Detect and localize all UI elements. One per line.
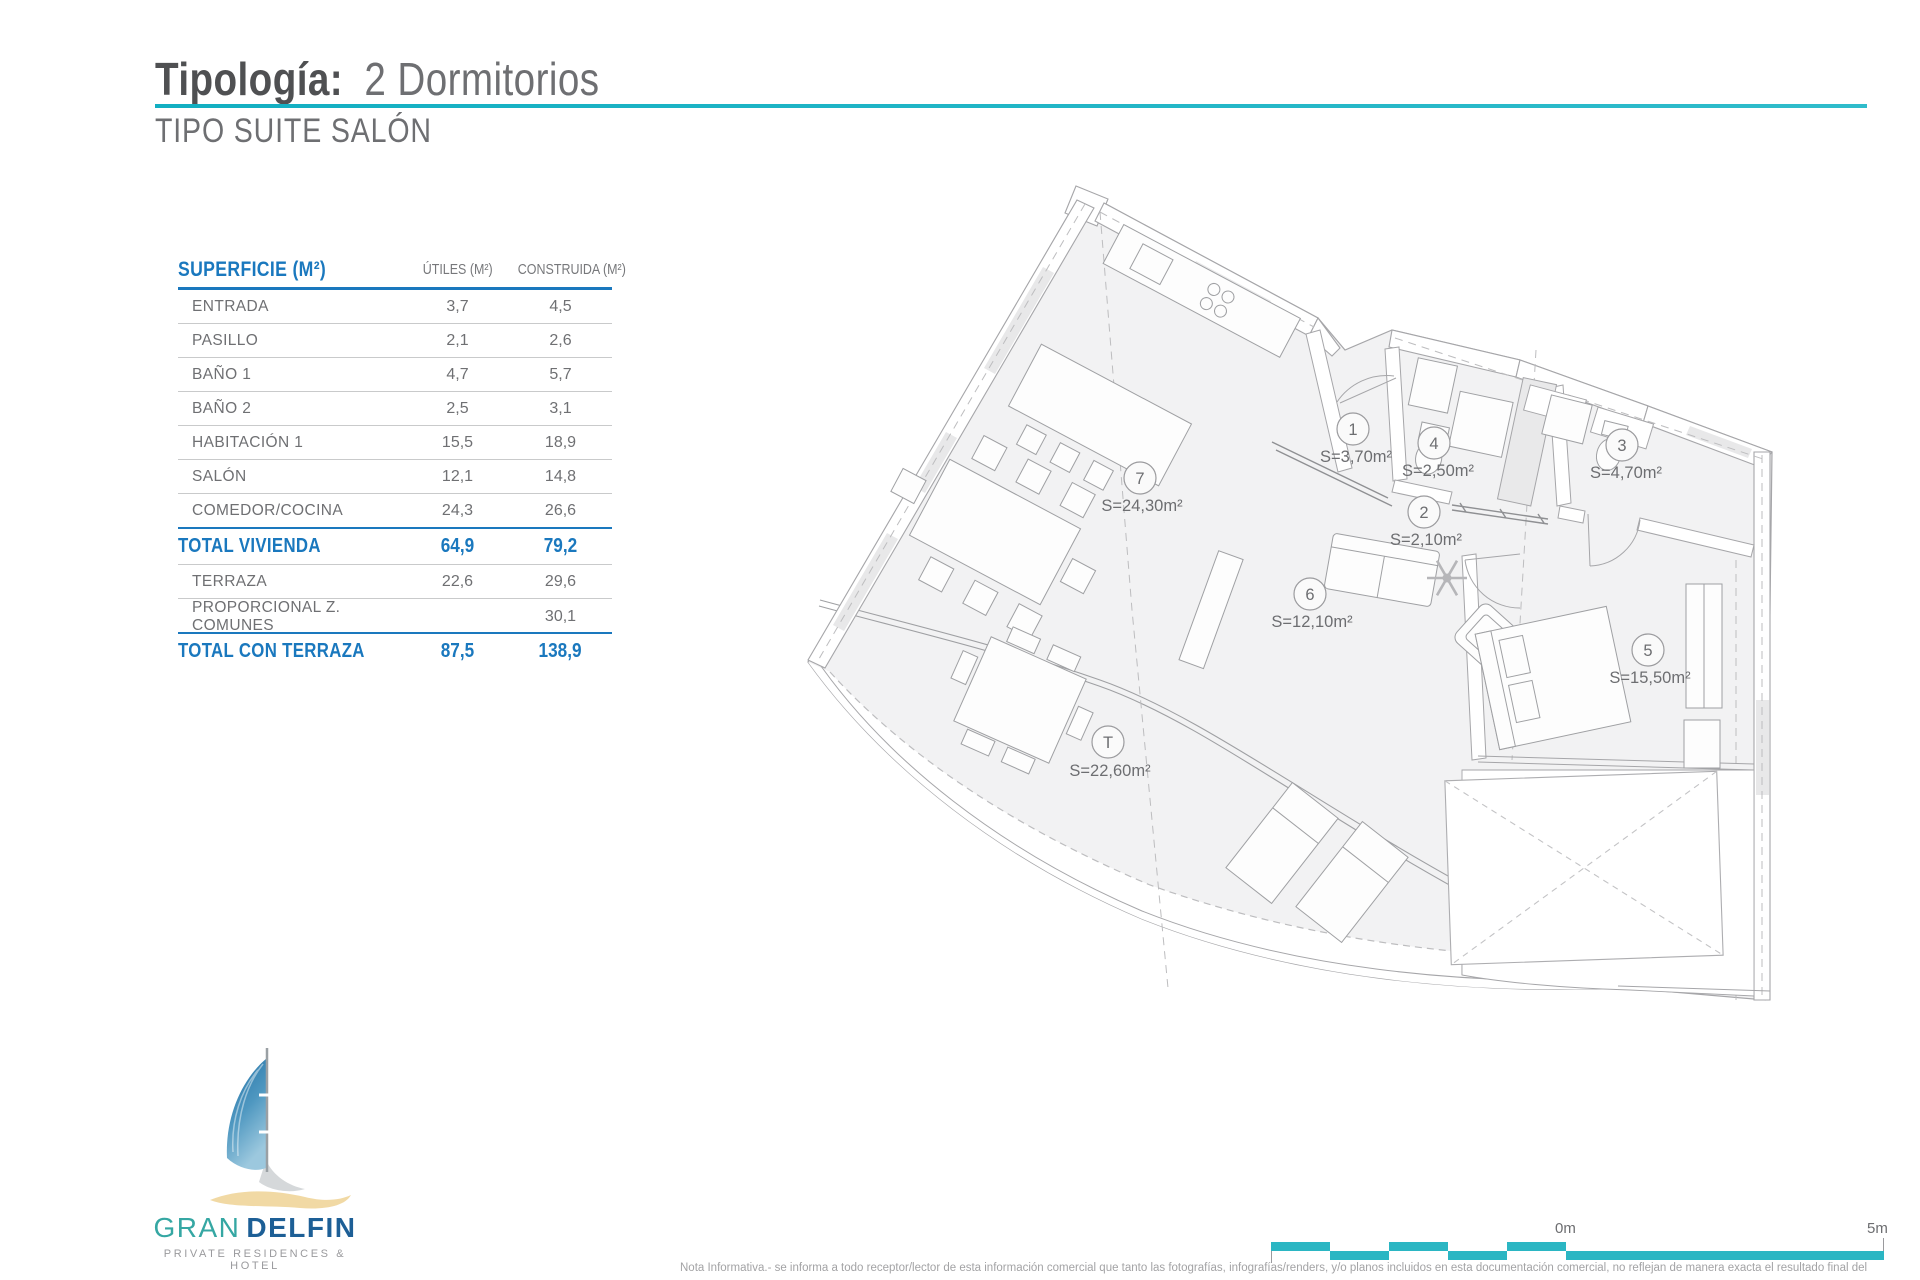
scale-bar: 0m 5m xyxy=(1271,1220,1887,1264)
svg-text:S=4,70m²: S=4,70m² xyxy=(1590,464,1662,482)
svg-text:7: 7 xyxy=(1135,470,1144,488)
scale-block xyxy=(1507,1242,1566,1251)
scale-block xyxy=(1271,1242,1330,1251)
disclaimer-text: Nota Informativa.- se informa a todo rec… xyxy=(680,1262,1915,1274)
brand-logo: GRANDELFIN PRIVATE RESIDENCES & HOTEL xyxy=(150,1040,360,1272)
svg-text:S=2,10m²: S=2,10m² xyxy=(1390,531,1462,549)
svg-text:S=24,30m²: S=24,30m² xyxy=(1101,497,1183,515)
svg-text:S=12,10m²: S=12,10m² xyxy=(1271,613,1353,631)
scale-block xyxy=(1330,1251,1389,1260)
svg-text:6: 6 xyxy=(1305,586,1314,604)
sail-logo-icon xyxy=(155,1040,355,1210)
svg-text:S=22,60m²: S=22,60m² xyxy=(1069,762,1151,780)
scale-block xyxy=(1389,1242,1448,1251)
scale-zero-label: 0m xyxy=(1555,1220,1576,1237)
svg-text:3: 3 xyxy=(1617,437,1626,455)
scale-five-label: 5m xyxy=(1867,1220,1888,1237)
svg-text:T: T xyxy=(1103,734,1113,752)
svg-text:S=15,50m²: S=15,50m² xyxy=(1609,669,1691,687)
scale-block xyxy=(1566,1251,1884,1260)
brand-tagline: PRIVATE RESIDENCES & HOTEL xyxy=(150,1248,360,1272)
svg-text:S=2,50m²: S=2,50m² xyxy=(1402,462,1474,480)
crossed-area xyxy=(1445,771,1723,964)
svg-text:5: 5 xyxy=(1643,642,1652,660)
scale-tick xyxy=(1883,1238,1884,1251)
svg-text:1: 1 xyxy=(1348,421,1357,439)
svg-text:S=3,70m²: S=3,70m² xyxy=(1320,448,1392,466)
svg-text:4: 4 xyxy=(1429,435,1438,453)
scale-block xyxy=(1448,1251,1507,1260)
brand-name: GRANDELFIN xyxy=(150,1212,360,1244)
svg-text:2: 2 xyxy=(1419,504,1428,522)
